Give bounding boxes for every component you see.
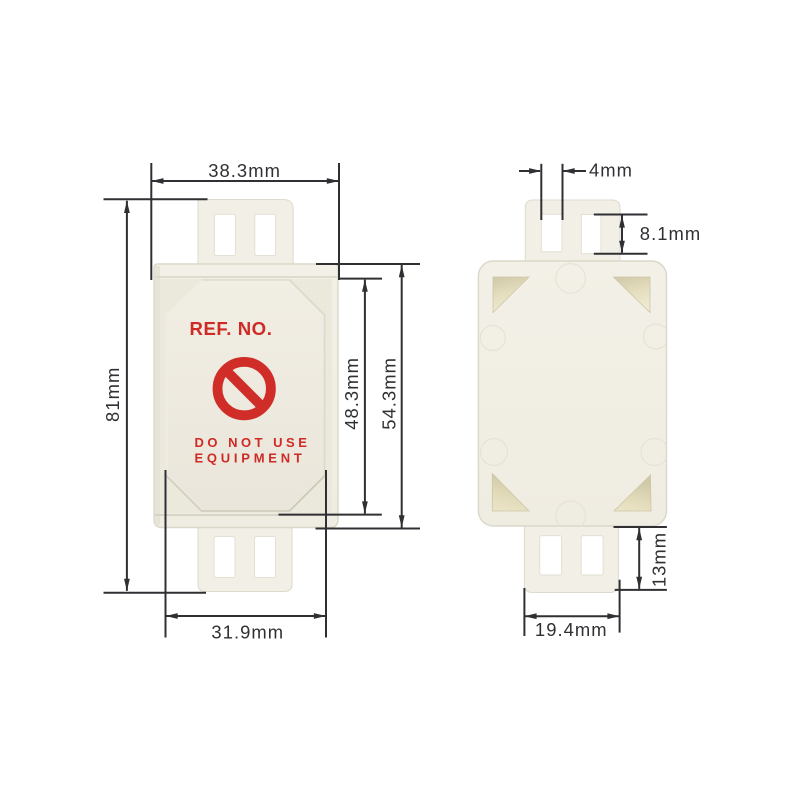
svg-text:4mm: 4mm — [589, 159, 633, 180]
svg-text:48.3mm: 48.3mm — [341, 357, 362, 430]
svg-text:81mm: 81mm — [102, 367, 123, 422]
svg-text:13mm: 13mm — [649, 532, 670, 587]
svg-text:38.3mm: 38.3mm — [208, 160, 281, 181]
svg-text:54.3mm: 54.3mm — [379, 357, 400, 430]
svg-text:19.4mm: 19.4mm — [535, 619, 608, 640]
svg-text:8.1mm: 8.1mm — [640, 223, 701, 244]
svg-text:DO NOT USE: DO NOT USE — [195, 435, 311, 450]
svg-text:31.9mm: 31.9mm — [211, 622, 284, 643]
svg-text:EQUIPMENT: EQUIPMENT — [195, 451, 306, 466]
svg-text:REF. NO.: REF. NO. — [190, 318, 273, 339]
